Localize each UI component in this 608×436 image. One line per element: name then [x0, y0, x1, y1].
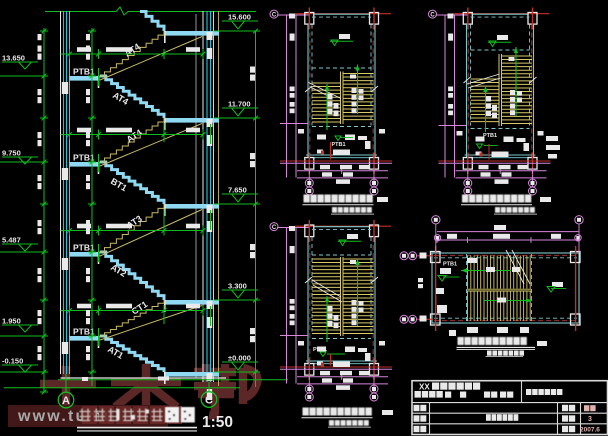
svg-text:1:50: 1:50 — [202, 414, 233, 431]
svg-text:PTB1: PTB1 — [483, 133, 497, 139]
svg-text:7.650: 7.650 — [228, 186, 247, 195]
svg-text:3: 3 — [588, 416, 592, 423]
svg-text:PTB1: PTB1 — [332, 142, 346, 148]
svg-text:XX: XX — [419, 383, 430, 392]
svg-text:1.950: 1.950 — [2, 317, 21, 326]
svg-text:±0.000: ±0.000 — [228, 354, 251, 363]
svg-text:15.600: 15.600 — [228, 13, 251, 22]
svg-text:C: C — [205, 395, 213, 407]
svg-text:PTB1: PTB1 — [443, 262, 457, 268]
svg-text:5.487: 5.487 — [2, 236, 21, 245]
svg-text:11.700: 11.700 — [228, 100, 251, 109]
svg-text:C: C — [430, 13, 435, 19]
svg-text:A: A — [62, 395, 70, 407]
svg-text:C: C — [272, 13, 277, 19]
svg-text:C: C — [272, 225, 277, 231]
svg-text:2007.6: 2007.6 — [580, 427, 600, 434]
svg-text:-0.150: -0.150 — [2, 357, 23, 366]
svg-text:9.750: 9.750 — [2, 149, 21, 158]
svg-text:3.300: 3.300 — [228, 282, 247, 291]
svg-text:13.650: 13.650 — [2, 54, 25, 63]
